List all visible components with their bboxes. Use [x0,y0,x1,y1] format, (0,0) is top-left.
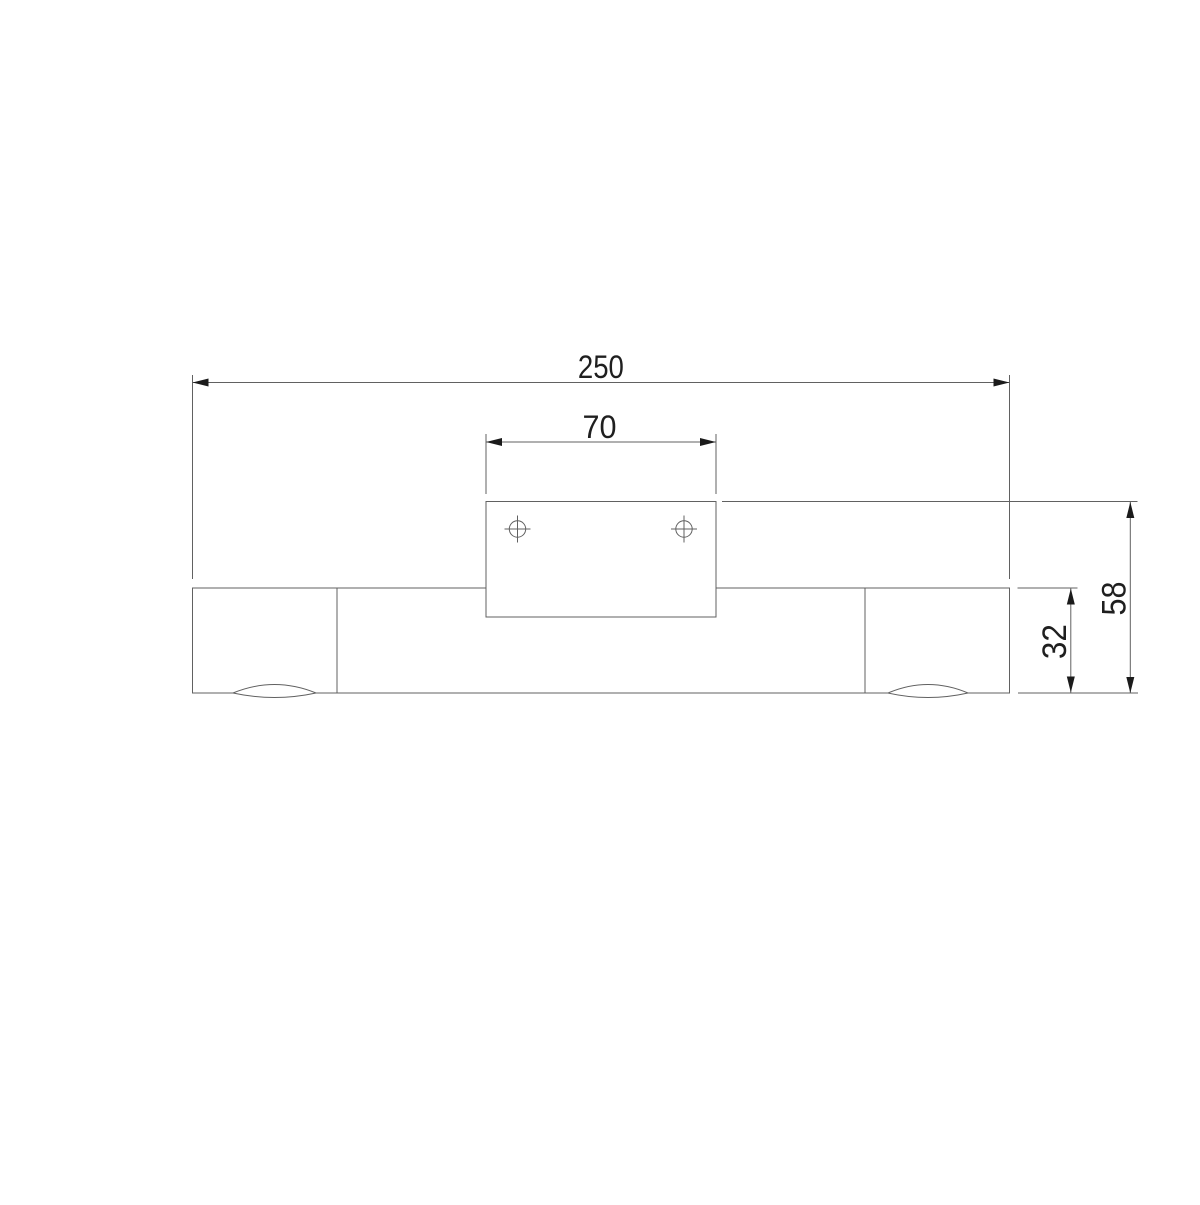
svg-text:250: 250 [578,349,624,385]
svg-text:70: 70 [583,409,617,445]
svg-text:32: 32 [1036,624,1074,659]
svg-text:58: 58 [1096,582,1134,616]
